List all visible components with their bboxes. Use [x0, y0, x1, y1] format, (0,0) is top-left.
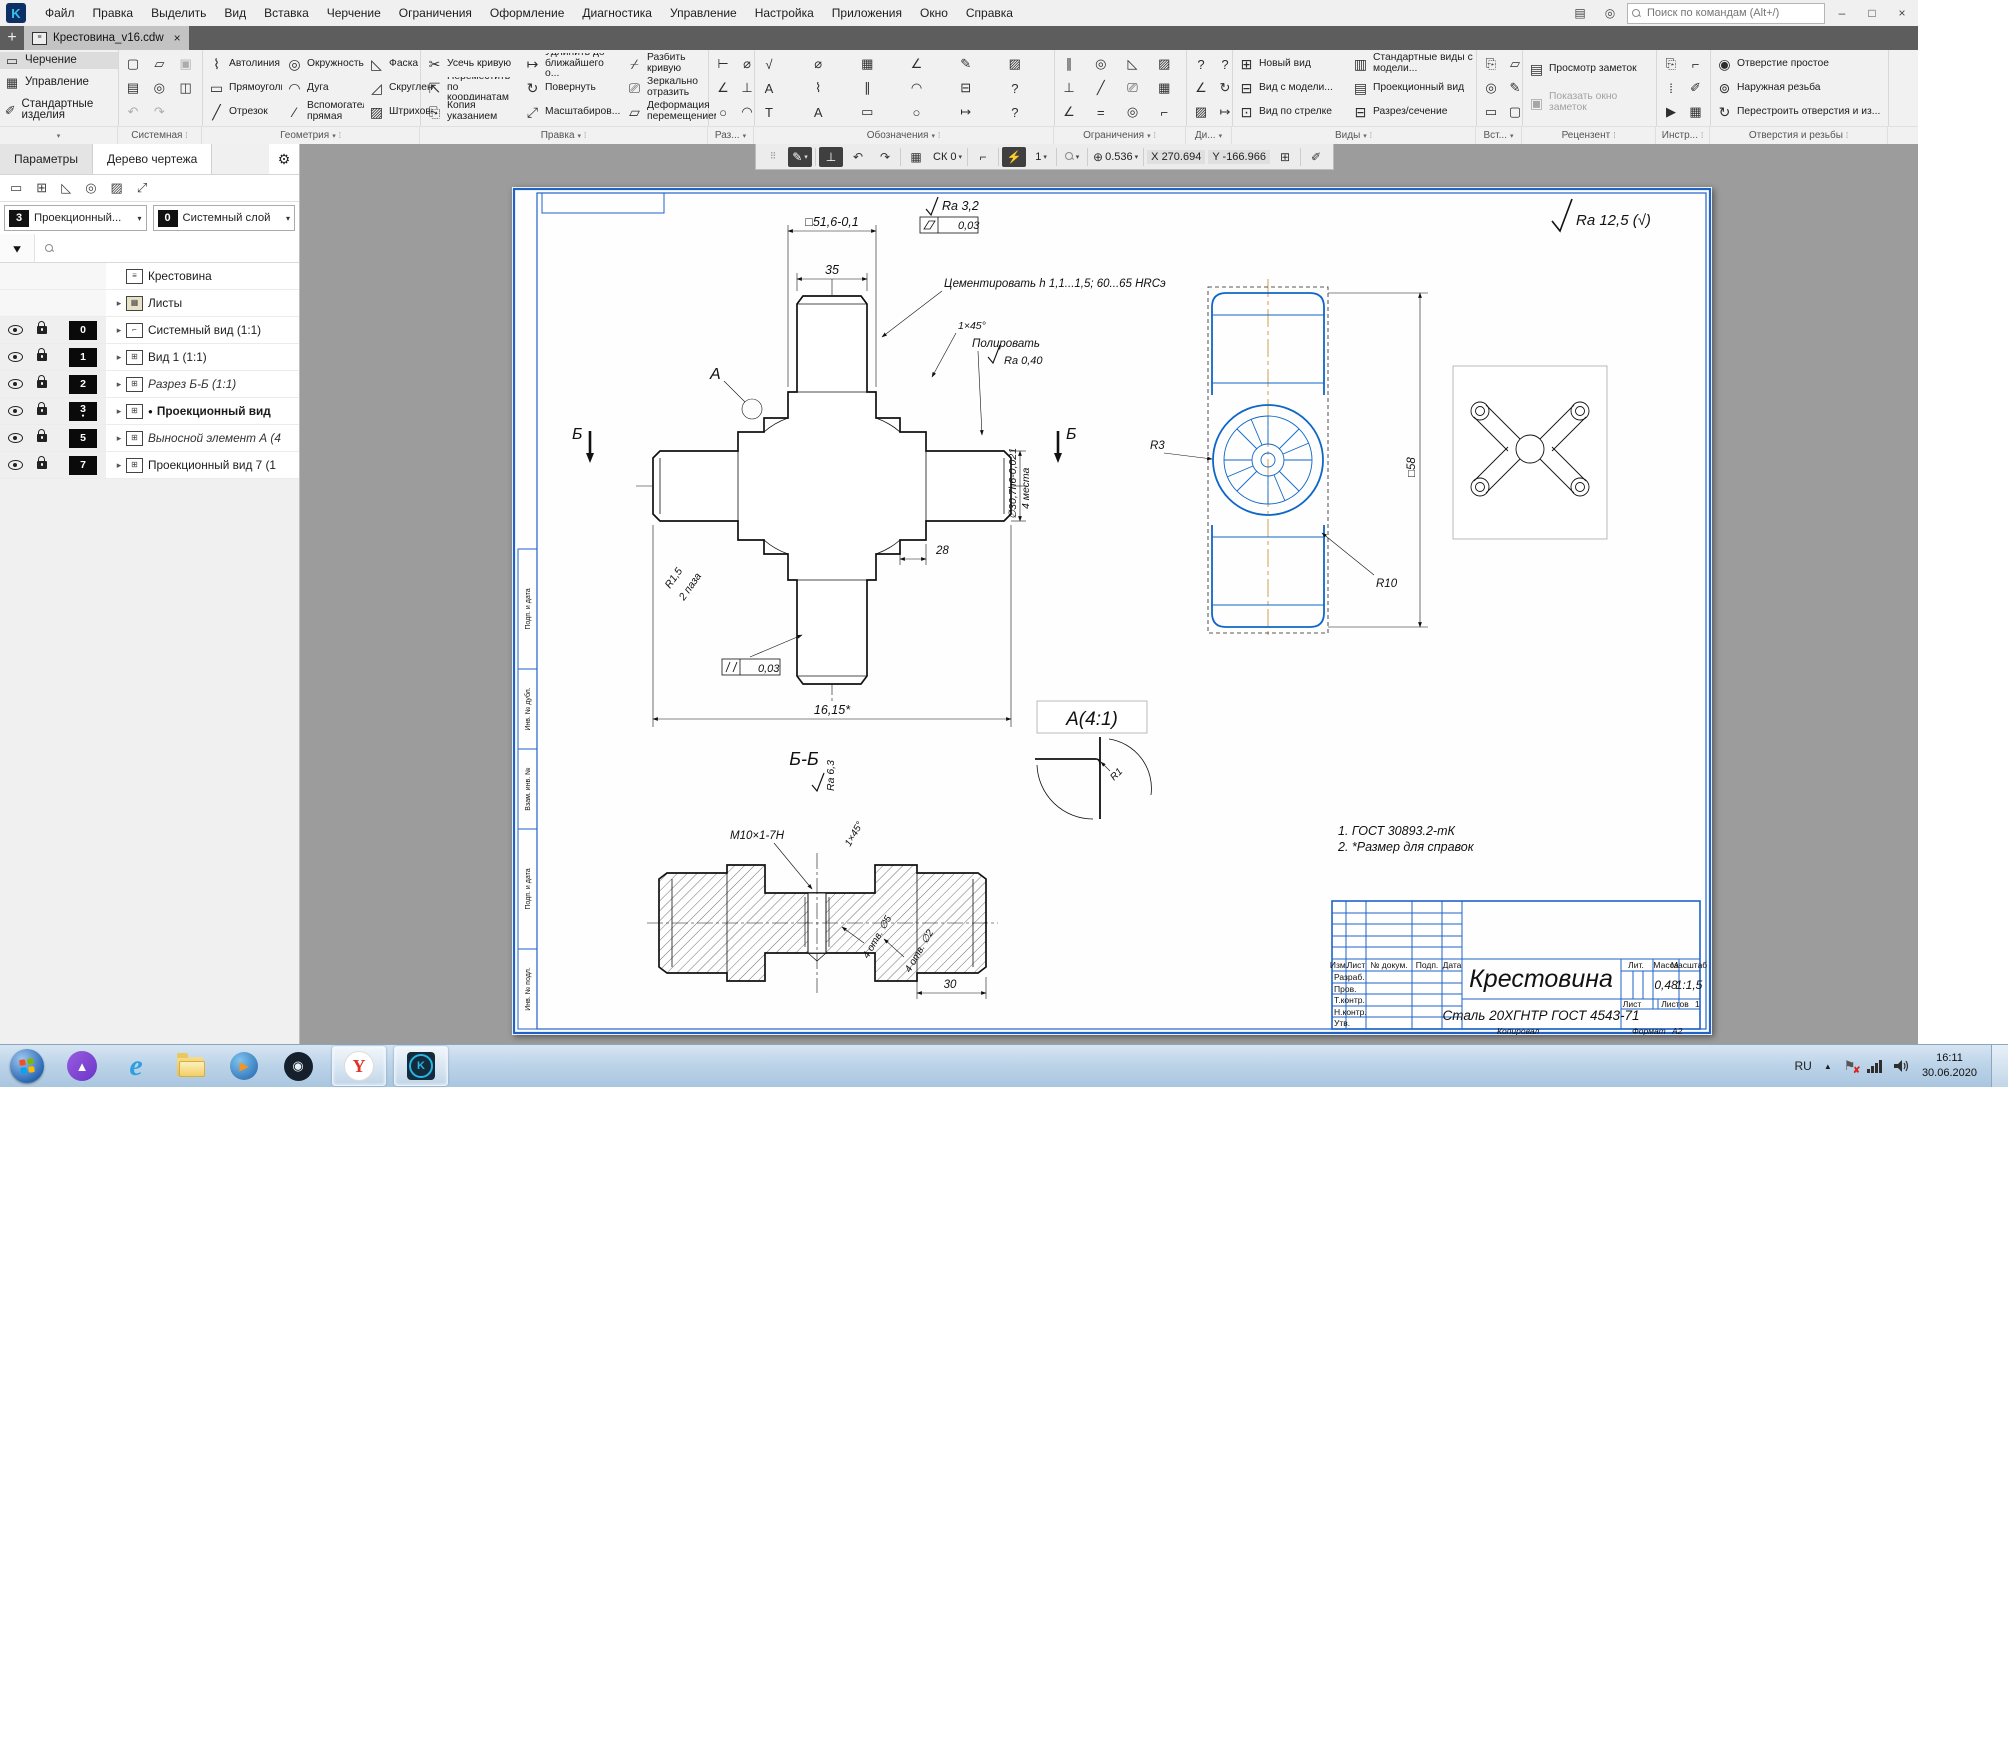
t6-icon[interactable]: ▦ — [1685, 101, 1707, 124]
dim-angular-icon[interactable]: ∠ — [712, 77, 734, 100]
menu-management[interactable]: Управление — [661, 0, 746, 26]
print-icon[interactable]: ▤ — [122, 77, 144, 100]
lock-icon[interactable] — [37, 353, 47, 361]
svg-text:Ra 6,3: Ra 6,3 — [825, 760, 837, 791]
aux-line-icon: ⁄ — [286, 104, 303, 120]
svg-text:0,48: 0,48 — [1654, 978, 1678, 992]
restore-button[interactable]: □ — [1859, 3, 1885, 23]
tool-external-thread[interactable]: ⊚Наружная резьба — [1714, 77, 1886, 100]
tool-view-from-model[interactable]: ⊟Вид с модели... — [1236, 77, 1348, 100]
magnifier-button[interactable]: ▾ — [1060, 147, 1084, 167]
group-holes: ◉Отверстие простое ⊚Наружная резьба ↻Пер… — [1711, 50, 1889, 126]
lock-icon[interactable] — [37, 461, 47, 469]
tool-trim[interactable]: ✂Усечь кривую — [424, 53, 520, 76]
group-views: ⊞Новый вид ⊟Вид с модели... ⊡Вид по стре… — [1233, 50, 1477, 126]
ins2-icon[interactable]: ◎ — [1480, 77, 1502, 100]
dim-radial-icon[interactable]: ○ — [712, 101, 734, 124]
diag1-icon[interactable]: ? — [1190, 53, 1212, 76]
hidden-icons-button[interactable]: ▲ — [1824, 1062, 1832, 1071]
svg-text:Цементировать h 1,1...1,5; 60.: Цементировать h 1,1...1,5; 60...65 HRCэ — [944, 278, 1166, 290]
yandex-icon: Y — [353, 1056, 366, 1077]
svg-text:R10: R10 — [1376, 578, 1398, 590]
svg-text:Копировал: Копировал — [1497, 1026, 1539, 1035]
fix-icon[interactable]: ◺ — [1122, 53, 1144, 76]
menu-layout[interactable]: Оформление — [481, 0, 573, 26]
taskbar-alice[interactable]: ▲ — [62, 1048, 102, 1084]
tool-move[interactable]: ⇱Переместить по координатам — [424, 77, 520, 100]
view-badge: 7 — [69, 456, 97, 475]
mirror-icon: ⎚ — [626, 80, 643, 97]
align-icon[interactable]: ╱ — [1090, 77, 1112, 100]
menu-help[interactable]: Справка — [957, 0, 1022, 26]
drawing-tree: ≡ Крестовина ▸ ▦ Листы 0 ▸ ⌐ Системный в… — [0, 263, 299, 479]
menu-settings[interactable]: Настройка — [746, 0, 823, 26]
diag2-icon[interactable]: ∠ — [1190, 77, 1212, 100]
visibility-icon[interactable] — [8, 325, 23, 335]
scale-icon: ⤢ — [524, 104, 541, 121]
hatch2-icon[interactable]: ▨ — [1004, 53, 1026, 76]
visibility-icon[interactable] — [8, 460, 23, 470]
windows-flag-icon — [19, 1058, 35, 1074]
taskbar-yandex-browser[interactable]: Y — [332, 1046, 386, 1086]
save-icon[interactable]: ▣ — [175, 53, 197, 76]
cs-button[interactable]: СК 0▾ — [931, 147, 964, 167]
layout6-icon[interactable]: ⤢ — [137, 180, 147, 196]
section-mark-icon[interactable]: ⊟ — [955, 77, 977, 100]
tab-drawing-tree[interactable]: Дерево чертежа — [93, 144, 212, 174]
close-button[interactable]: × — [1889, 3, 1915, 23]
dot-icon[interactable]: ⌐ — [1153, 101, 1175, 124]
play-icon: ▶ — [239, 1059, 248, 1073]
svg-text:1:1,5: 1:1,5 — [1676, 978, 1703, 992]
pen-button[interactable]: ✐ — [1304, 147, 1328, 167]
view-from-model-icon: ⊟ — [1238, 80, 1255, 97]
group-label-insert[interactable]: Вст...▾ — [1476, 127, 1522, 144]
group-tools: ⎘ ⁞ ▶ ⌐ ✐ ▦ — [1657, 50, 1711, 126]
tool-projection-view[interactable]: ▤Проекционный вид — [1350, 77, 1478, 100]
screen-icon[interactable]: ◎ — [1597, 3, 1623, 23]
arc-icon: ◠ — [286, 80, 303, 97]
layout1-icon[interactable]: ▭ — [10, 180, 22, 196]
action-center-icon[interactable]: ⚑✘ — [1844, 1058, 1856, 1074]
redo-icon[interactable]: ↷ — [148, 101, 170, 124]
folder-icon — [177, 1057, 203, 1076]
t2-icon[interactable]: ⁞ — [1660, 77, 1682, 100]
blank-cell — [175, 101, 197, 124]
rotate-cw-button[interactable]: ↶ — [846, 147, 870, 167]
tree-item-section-bb[interactable]: 2 ▸ ⊞ Разрез Б-Б (1:1) — [0, 371, 299, 398]
perpendicular-icon[interactable]: ⊥ — [1058, 77, 1080, 100]
system-tray: RU ▲ ⚑✘ 16:11 30.06.2020 — [1795, 1045, 2008, 1087]
svg-text:Взам. инв. №: Взам. инв. № — [525, 767, 532, 810]
text-a-icon[interactable]: А — [758, 77, 780, 100]
management-icon: ▦ — [4, 76, 20, 89]
ribbon: ▭Черчение ▦Управление ✐Стандартные издел… — [0, 50, 1918, 126]
svg-text:1: 1 — [1695, 999, 1700, 1009]
group-label-dimensions[interactable]: Раз...▾ — [708, 127, 754, 144]
svg-text:30: 30 — [944, 979, 957, 991]
t5-icon[interactable]: ✐ — [1685, 77, 1707, 100]
expand-icon[interactable]: ▸ — [112, 325, 126, 336]
projection-view-selected[interactable]: R3 R10 □58 — [1150, 279, 1428, 639]
show-desktop-button[interactable] — [1991, 1045, 2008, 1087]
tree-item-sheets[interactable]: ▸ ▦ Листы — [0, 290, 299, 317]
group-label-annotations[interactable]: Обозначения▾⁞ — [754, 127, 1054, 144]
rotate-icon: ↻ — [524, 80, 541, 97]
tangent-icon[interactable]: ◎ — [1090, 53, 1112, 76]
tool-rotate[interactable]: ↻Повернуть — [522, 77, 622, 100]
drawing-sheet[interactable]: Подп. и дата Инв. № дубл. Взам. инв. № П… — [512, 187, 1712, 1035]
main-area: Параметры Дерево чертежа ⚙ ▭ ⊞ ◺ ◎ ▨ ⤢ 3… — [0, 144, 1918, 1044]
tool-extend[interactable]: ↦Удлинить до ближайшего о... — [522, 53, 622, 76]
svg-text:□51,6-0,1: □51,6-0,1 — [805, 215, 858, 229]
tool-view-notes[interactable]: ▤Просмотр заметок — [1526, 58, 1654, 81]
tool-deform[interactable]: ▱Деформация перемещением — [624, 101, 716, 124]
tree-search[interactable] — [35, 234, 299, 262]
svg-text:2. *Размер для справок: 2. *Размер для справок — [1337, 840, 1475, 854]
layout5-icon[interactable]: ▨ — [111, 180, 123, 196]
layer-number-badge: 0 — [158, 210, 178, 227]
view-badge: 3● — [69, 402, 97, 421]
coincide-icon[interactable]: ◎ — [1122, 101, 1144, 124]
expand-icon[interactable]: ▸ — [112, 406, 126, 417]
trim-icon: ✂ — [426, 56, 443, 73]
snap-button[interactable]: ⚡ — [1002, 147, 1026, 167]
svg-text:Полировать: Полировать — [972, 338, 1040, 350]
cursor-y[interactable]: Y -166.966 — [1208, 150, 1270, 164]
step-button[interactable]: 1▾ — [1029, 147, 1053, 167]
grip-icon[interactable]: ⠿ — [761, 147, 785, 167]
menu-view[interactable]: Вид — [215, 0, 255, 26]
panel-quick-icons: ▭ ⊞ ◺ ◎ ▨ ⤢ — [0, 175, 299, 202]
svg-text:0,03: 0,03 — [958, 220, 980, 232]
new-tab-button[interactable]: + — [0, 26, 24, 50]
deform-icon: ▱ — [626, 104, 643, 121]
ins3-icon[interactable]: ▭ — [1480, 101, 1502, 124]
hatch-icon: ▨ — [368, 104, 385, 121]
mode-drafting[interactable]: ▭Черчение — [0, 52, 118, 69]
dim-linear-icon[interactable]: ⊢ — [712, 53, 734, 76]
rotate-ccw-button[interactable]: ↷ — [873, 147, 897, 167]
kompas-icon: K — [417, 1060, 425, 1072]
external-thread-icon: ⊚ — [1716, 80, 1733, 97]
xy-icon[interactable]: ⊞ — [1273, 147, 1297, 167]
svg-text:Утв.: Утв. — [1334, 1018, 1350, 1028]
taskbar-kompas[interactable]: K — [394, 1046, 448, 1086]
steam-icon: ◉ — [292, 1058, 303, 1074]
modes-collapse[interactable]: ▾ — [0, 127, 118, 144]
menu-window[interactable]: Окно — [911, 0, 957, 26]
tool-section-view[interactable]: ⊟Разрез/сечение — [1350, 101, 1478, 124]
menu-edit[interactable]: Правка — [84, 0, 143, 26]
tool-split[interactable]: ⌿Разбить кривую — [624, 53, 716, 76]
note-icon[interactable]: ✎ — [955, 53, 977, 76]
show-notes-icon: ▣ — [1528, 95, 1545, 112]
ins1-icon[interactable]: ⎘ — [1480, 53, 1502, 76]
tool-show-notes-window[interactable]: ▣Показать окно заметок — [1526, 92, 1654, 115]
menu-applications[interactable]: Приложения — [823, 0, 911, 26]
main-view[interactable]: □51,6-0,1 35 Ra 3,2 0,03 Цементировать h… — [572, 197, 1166, 727]
tool-autoline[interactable]: ⌇Автолиния — [206, 53, 282, 76]
section-view[interactable]: Б-Б Ra 6,3 M10×1-7H 1×45° — [647, 749, 998, 999]
document-icon: ≡ — [126, 269, 143, 284]
tool-rectangle[interactable]: ▭Прямоугольник — [206, 77, 282, 100]
document-tab-title: Крестовина_v16.cdw — [53, 32, 164, 44]
visibility-icon[interactable] — [8, 406, 23, 416]
detail-view-a[interactable]: А(4:1) R1 — [1035, 701, 1151, 819]
tool-new-view[interactable]: ⊞Новый вид — [1236, 53, 1348, 76]
symmetry-icon[interactable]: ⎚ — [1122, 77, 1144, 100]
command-search[interactable] — [1627, 3, 1825, 24]
arrow-view-icon[interactable]: ↦ — [955, 101, 977, 124]
preview-icon[interactable]: ◎ — [148, 77, 170, 100]
tool-view-by-arrow[interactable]: ⊡Вид по стрелке — [1236, 101, 1348, 124]
expand-icon[interactable]: ▸ — [112, 379, 126, 390]
tolerance-frame-icon[interactable]: ▭ — [856, 101, 878, 124]
alice-icon: ▲ — [76, 1059, 89, 1074]
visibility-icon[interactable] — [8, 433, 23, 443]
start-button[interactable] — [10, 1049, 44, 1083]
move-icon: ⇱ — [426, 80, 443, 97]
tree-item-projection-view7[interactable]: 7 ▸ ⊞ Проекционный вид 7 (1 — [0, 452, 299, 479]
text-icon[interactable]: Т — [758, 101, 780, 124]
standard-parts-icon: ✐ — [4, 104, 17, 117]
menu-constraints[interactable]: Ограничения — [390, 0, 481, 26]
language-indicator[interactable]: RU — [1795, 1059, 1812, 1073]
segment-icon: ╱ — [208, 104, 225, 121]
new-doc-icon[interactable]: ▢ — [122, 53, 144, 76]
group-label-holes[interactable]: Отверстия и резьбы⁞ — [1710, 127, 1888, 144]
lock-icon[interactable] — [37, 326, 47, 334]
svg-text:Б: Б — [1066, 426, 1076, 443]
center-mark-icon[interactable]: ○ — [905, 101, 927, 124]
expand-icon[interactable]: ▸ — [112, 460, 126, 471]
ortho-button[interactable]: ⊥ — [819, 147, 843, 167]
taskbar-steam[interactable]: ◉ — [278, 1048, 318, 1084]
cursor-x[interactable]: X 270.694 — [1147, 150, 1205, 164]
magnifier-icon — [1065, 152, 1074, 161]
taskbar-ie[interactable]: e — [116, 1048, 156, 1084]
svg-text:R1: R1 — [1108, 766, 1125, 783]
group-label-constraints[interactable]: Ограничения▾⁞ — [1054, 127, 1186, 144]
svg-text:28: 28 — [935, 545, 949, 557]
svg-text:M10×1-7H: M10×1-7H — [730, 830, 785, 842]
menu-insert[interactable]: Вставка — [255, 0, 318, 26]
lock-icon[interactable] — [37, 380, 47, 388]
tool-mirror[interactable]: ⎚Зеркально отразить — [624, 77, 716, 100]
search-icon — [45, 244, 54, 253]
mode-standard-parts[interactable]: ✐Стандартные изделия — [0, 97, 118, 124]
current-view-dot: ● — [81, 415, 84, 418]
view-notes-icon: ▤ — [1528, 61, 1545, 78]
tree-item-document[interactable]: ≡ Крестовина — [0, 263, 299, 290]
document-tab[interactable]: ≡ Крестовина_v16.cdw × — [24, 26, 189, 50]
q2-icon[interactable]: ? — [1004, 101, 1026, 124]
fillet-icon: ◿ — [368, 80, 385, 97]
svg-text:Крестовина: Крестовина — [1469, 965, 1613, 993]
tree-item-view1[interactable]: 1 ▸ ⊞ Вид 1 (1:1) — [0, 344, 299, 371]
split-icon: ⌿ — [626, 56, 643, 73]
svg-text:№ докум.: № докум. — [1370, 960, 1407, 970]
group-label-views[interactable]: Виды▾⁞ — [1232, 127, 1476, 144]
current-marker-icon: ● — [148, 407, 153, 416]
t4-icon[interactable]: ⌐ — [1685, 53, 1707, 76]
taskbar-explorer[interactable] — [170, 1048, 210, 1084]
hatch3-icon[interactable]: ▨ — [1153, 53, 1175, 76]
tool-copy[interactable]: ⎘Копия указанием — [424, 101, 520, 124]
tool-segment[interactable]: ╱Отрезок — [206, 101, 282, 124]
svg-text:0,03: 0,03 — [758, 663, 780, 675]
tool-simple-hole[interactable]: ◉Отверстие простое — [1714, 53, 1886, 76]
group-label-geometry[interactable]: Геометрия▾⁞ — [202, 127, 420, 144]
tool-rebuild-holes[interactable]: ↻Перестроить отверстия и из... — [1714, 101, 1886, 124]
tree-item-system-view[interactable]: 0 ▸ ⌐ Системный вид (1:1) — [0, 317, 299, 344]
panel-gear-icon[interactable]: ⚙ — [269, 144, 299, 174]
clock-date: 30.06.2020 — [1922, 1066, 1977, 1081]
filter-button[interactable]: ▼ — [0, 234, 35, 262]
style-pencil-button[interactable]: ✎▾ — [788, 147, 812, 167]
datum-icon[interactable]: А — [807, 101, 829, 124]
tool-standard-views[interactable]: ▥Стандартные виды с модели... — [1350, 53, 1478, 76]
layout3-icon[interactable]: ◺ — [61, 180, 71, 196]
tab-close-icon[interactable]: × — [174, 31, 181, 45]
panel-combos: 3 Проекционный... ▾ 0 Системный слой ▾ — [0, 202, 299, 234]
open-doc-icon[interactable]: ▱ — [148, 53, 170, 76]
svg-text:16,15*: 16,15* — [814, 703, 851, 717]
drafting-icon: ▭ — [4, 54, 20, 67]
svg-text:Б: Б — [572, 426, 582, 443]
group-constraints: ∥ ⊥ ∠ ◎ ╱ = ◺ ⎚ ◎ ▨ ▦ ⌐ — [1055, 50, 1187, 126]
search-input[interactable] — [1645, 6, 1809, 20]
group-geometry: ⌇Автолиния ▭Прямоугольник ╱Отрезок ◎Окру… — [203, 50, 421, 126]
equal-icon[interactable]: = — [1090, 101, 1112, 124]
svg-text:1×45°: 1×45° — [958, 320, 986, 332]
ribbon-group-labels: ▾ Системная⁞ Геометрия▾⁞ Правка▾⁞ Раз...… — [0, 126, 1918, 145]
menu-select[interactable]: Выделить — [142, 0, 215, 26]
title-block[interactable]: Изм. Лист № докум. Подп. Дата Разраб. Пр… — [1330, 901, 1707, 1035]
group-edit: ✂Усечь кривую ⇱Переместить по координата… — [421, 50, 709, 126]
parallel-icon[interactable]: ∥ — [1058, 53, 1080, 76]
mode-management[interactable]: ▦Управление — [0, 74, 118, 91]
drawing-canvas[interactable]: Подп. и дата Инв. № дубл. Взам. инв. № П… — [300, 144, 1918, 1044]
group-label-diagnostics[interactable]: Ди...▾ — [1186, 127, 1232, 144]
svg-text:Изм.: Изм. — [1330, 960, 1348, 970]
isometric-view[interactable] — [1453, 366, 1607, 539]
expand-icon[interactable]: ▸ — [112, 433, 126, 444]
wave-icon[interactable]: ◠ — [905, 77, 927, 100]
current-view-combo[interactable]: 3 Проекционный... ▾ — [4, 205, 147, 231]
leader-icon[interactable]: ⌇ — [807, 77, 829, 100]
view-icon: ⊞ — [126, 350, 143, 365]
tree-item-projection-view[interactable]: 3● ▸ ⊞ ● Проекционный вид — [0, 398, 299, 425]
network-icon[interactable] — [1867, 1060, 1882, 1073]
sheet-svg: Подп. и дата Инв. № дубл. Взам. инв. № П… — [512, 187, 1712, 1035]
taskbar-media-player[interactable]: ▶ — [224, 1048, 264, 1084]
lock-icon[interactable] — [37, 407, 47, 415]
document-icon: ≡ — [32, 32, 47, 45]
t3-icon[interactable]: ▶ — [1660, 101, 1682, 124]
group-diagnostics: ? ∠ ▨ ? ↻ ↦ — [1187, 50, 1233, 126]
taskbar: ▲ e ▶ ◉ Y K RU ▲ ⚑✘ — [0, 1044, 2008, 1087]
tool-circle[interactable]: ◎Окружность — [284, 53, 364, 76]
table-icon[interactable]: ▦ — [856, 53, 878, 76]
visibility-icon[interactable] — [8, 352, 23, 362]
layout-icon[interactable]: ▤ — [1567, 3, 1593, 23]
expand-icon[interactable]: ▸ — [112, 298, 126, 309]
tree-filter-row: ▼ — [0, 234, 299, 263]
layout4-icon[interactable]: ◎ — [85, 180, 96, 196]
chamfer-icon: ◺ — [368, 56, 385, 73]
roughness-icon[interactable]: √ — [758, 53, 780, 76]
lock-icon[interactable] — [37, 434, 47, 442]
view-icon: ⊞ — [126, 377, 143, 392]
svg-text:□58: □58 — [1406, 457, 1418, 477]
svg-text:А2: А2 — [1671, 1026, 1683, 1035]
diag3-icon[interactable]: ▨ — [1190, 101, 1212, 124]
view-icon: ⌐ — [126, 323, 143, 338]
group-label-system[interactable]: Системная⁞ — [118, 127, 202, 144]
diameter-mark-icon[interactable]: ⌀ — [807, 53, 829, 76]
marker-icon[interactable]: ∥ — [856, 77, 878, 100]
svg-text:Пров.: Пров. — [1334, 984, 1356, 994]
angle-icon[interactable]: ∠ — [1058, 101, 1080, 124]
undo-icon[interactable]: ↶ — [122, 101, 144, 124]
group-label-tools[interactable]: Инстр...⁞ — [1656, 127, 1710, 144]
group-label-edit[interactable]: Правка▾⁞ — [420, 127, 708, 144]
current-layer-combo[interactable]: 0 Системный слой ▾ — [153, 205, 296, 231]
view-icon: ⊞ — [126, 431, 143, 446]
tab-parameters[interactable]: Параметры — [0, 144, 93, 174]
svg-text:Инв. № подл.: Инв. № подл. — [525, 967, 532, 1011]
menu-drafting[interactable]: Черчение — [318, 0, 390, 26]
svg-text:35: 35 — [825, 263, 839, 277]
extend-icon: ↦ — [524, 56, 541, 73]
tool-scale[interactable]: ⤢Масштабиров... — [522, 101, 622, 124]
tool-aux-line[interactable]: ⁄Вспомогатель... прямая — [284, 101, 364, 124]
menu-diagnostics[interactable]: Диагностика — [573, 0, 661, 26]
save-as-icon[interactable]: ◫ — [175, 77, 197, 100]
tool-arc[interactable]: ◠Дуга — [284, 77, 364, 100]
grid-button[interactable]: ▦ — [904, 147, 928, 167]
svg-text:Б-Б: Б-Б — [789, 749, 819, 769]
t1-icon[interactable]: ⎘ — [1660, 53, 1682, 76]
corner-button[interactable]: ⌐ — [971, 147, 995, 167]
view-icon: ⊞ — [126, 404, 143, 419]
svg-text:Лит.: Лит. — [1628, 960, 1644, 970]
visibility-icon[interactable] — [8, 379, 23, 389]
minimize-button[interactable]: – — [1829, 3, 1855, 23]
layout2-icon[interactable]: ⊞ — [36, 180, 47, 196]
tree-item-detail-a[interactable]: 5 ▸ ⊞ Выносной элемент А (4 — [0, 425, 299, 452]
view-badge: 5 — [69, 429, 97, 448]
expand-icon[interactable]: ▸ — [112, 352, 126, 363]
grid2-icon[interactable]: ▦ — [1153, 77, 1175, 100]
axis-icon[interactable]: ∠ — [905, 53, 927, 76]
volume-icon[interactable] — [1894, 1059, 1910, 1073]
svg-text:А(4:1): А(4:1) — [1065, 709, 1118, 730]
menu-file[interactable]: Файл — [36, 0, 84, 26]
view-number-badge: 3 — [9, 210, 29, 227]
svg-text:R3: R3 — [1150, 440, 1165, 452]
zoom-button[interactable]: ⊕0.536▾ — [1091, 147, 1140, 167]
taskbar-clock[interactable]: 16:11 30.06.2020 — [1922, 1051, 1977, 1081]
clock-time: 16:11 — [1922, 1051, 1977, 1066]
q1-icon[interactable]: ? — [1004, 77, 1026, 100]
svg-text:Дата: Дата — [1443, 960, 1462, 970]
group-insert: ⎘ ◎ ▭ ▱ ✎ ▢ — [1477, 50, 1523, 126]
group-label-review[interactable]: Рецензент⁞ — [1522, 127, 1656, 144]
section-view-icon: ⊟ — [1352, 104, 1369, 121]
